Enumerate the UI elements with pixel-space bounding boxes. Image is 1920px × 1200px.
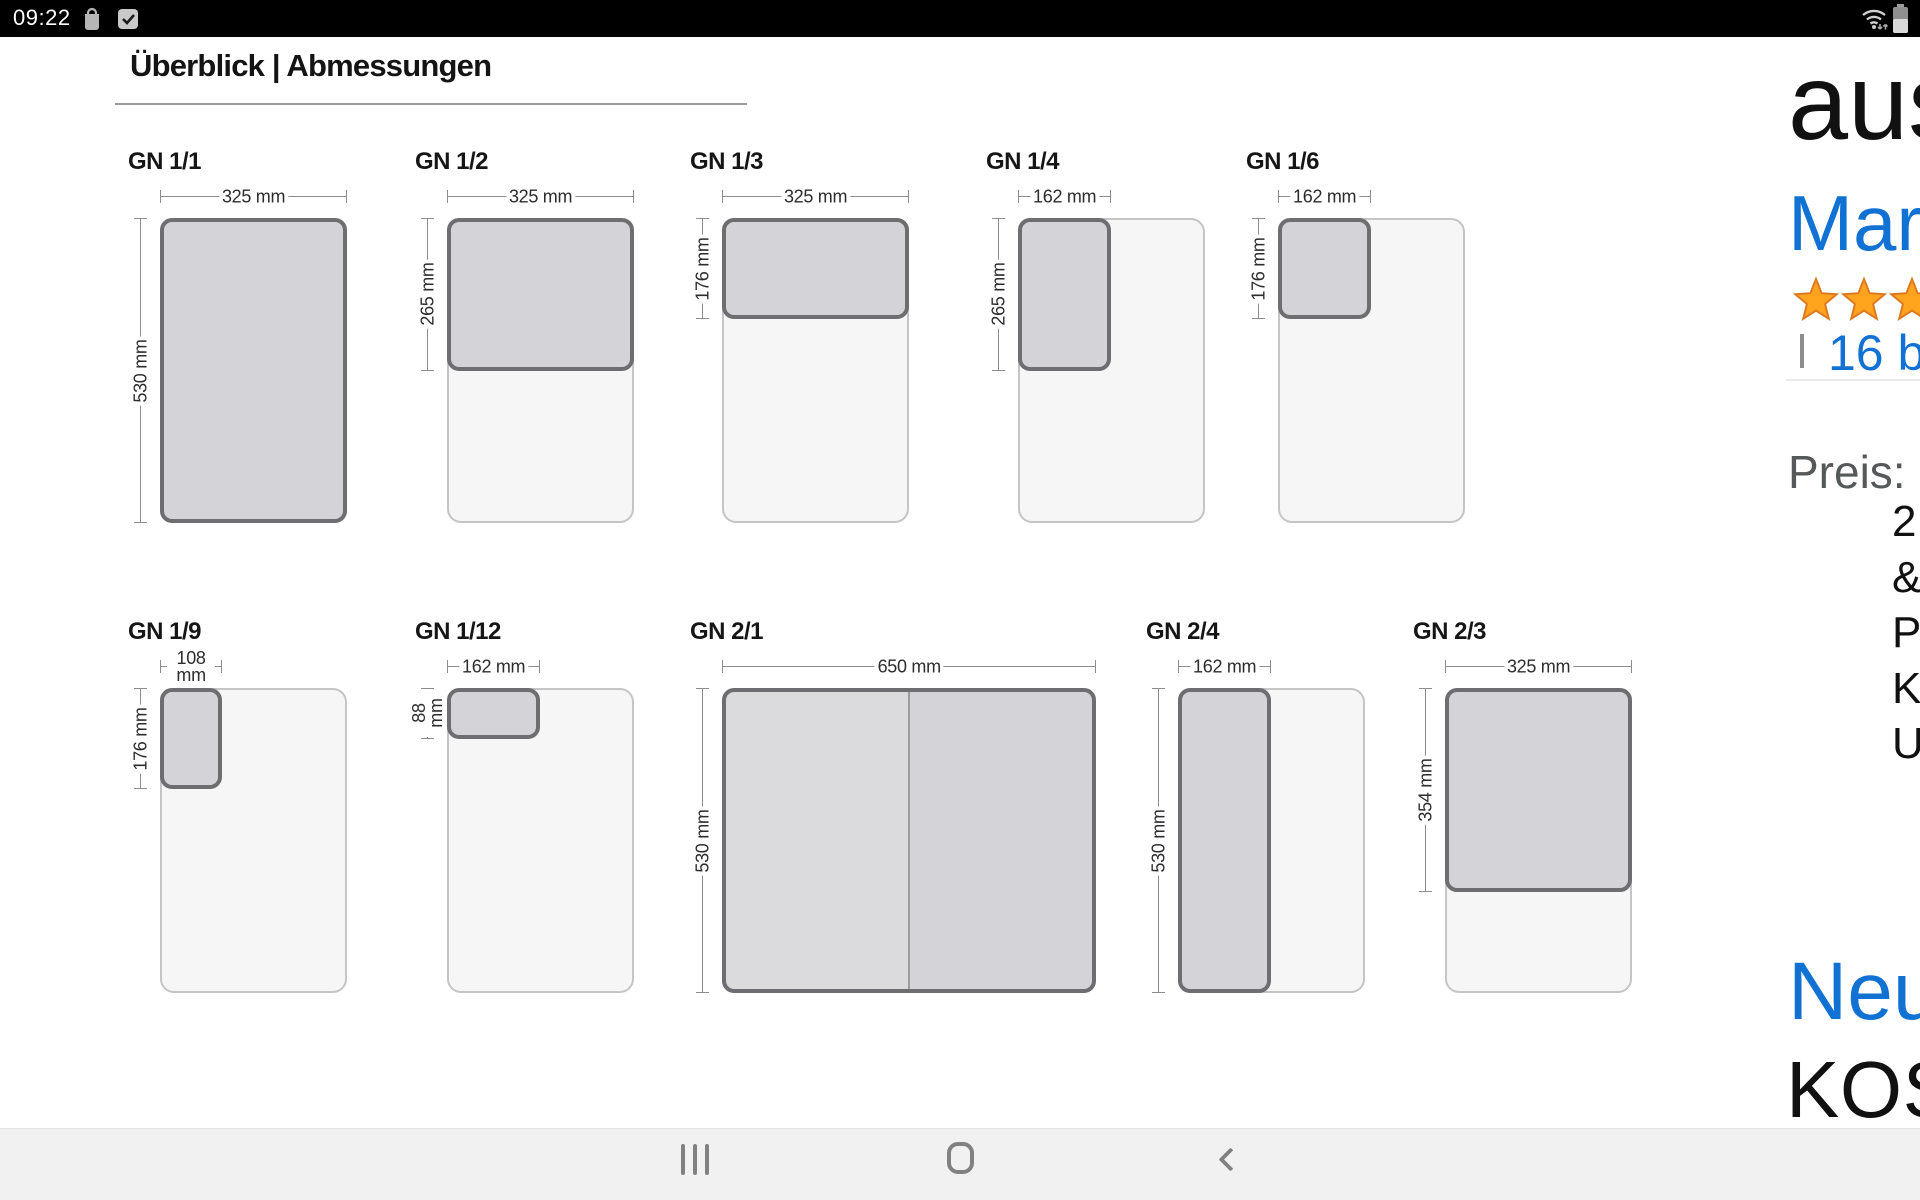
section-divider [1786, 379, 1920, 381]
dim-tick [1631, 660, 1632, 673]
dim-label: 162 mm [1030, 188, 1099, 205]
gn-highlight [722, 218, 909, 319]
dim-tick [908, 190, 909, 203]
dim-label: 176 mm [1250, 234, 1267, 303]
dim-tick [421, 738, 434, 739]
rating-separator [1800, 334, 1804, 368]
back-button[interactable] [1202, 1129, 1262, 1200]
price-details-partials: 2 & P K U [1892, 494, 1920, 772]
gn-highlight [1018, 218, 1111, 371]
dim-label: 325 mm [781, 188, 850, 205]
star-icon [1889, 277, 1920, 321]
product-title-partial: aus [1788, 48, 1920, 156]
home-icon [947, 1142, 974, 1174]
title-underline [115, 103, 747, 105]
dim-tick [221, 660, 222, 673]
wifi-icon [1861, 7, 1889, 32]
dim-label: 325 mm [1504, 658, 1573, 675]
dim-tick [1018, 190, 1019, 203]
gn-panel-label: GN 1/9 [128, 620, 201, 644]
dim-tick [160, 190, 161, 203]
dim-tick [134, 522, 147, 523]
dim-tick [447, 660, 448, 673]
dim-tick [134, 218, 147, 219]
reviews-link-partial[interactable]: 16 be [1828, 328, 1920, 378]
dim-label: 530 mm [132, 336, 149, 405]
dim-tick [1419, 688, 1432, 689]
dim-tick [1252, 218, 1265, 219]
recents-icon [681, 1144, 685, 1175]
dim-tick [722, 190, 723, 203]
dim-label: 162 mm [459, 658, 528, 675]
dim-tick [421, 370, 434, 371]
gn-highlight [1278, 218, 1371, 319]
dim-tick [421, 218, 434, 219]
gn-left-half [726, 692, 908, 989]
gn-panel-label: GN 1/12 [415, 620, 501, 644]
dim-label: 265 mm [990, 260, 1007, 329]
dim-label: 325 mm [506, 188, 575, 205]
dim-tick [696, 992, 709, 993]
dim-tick [447, 190, 448, 203]
home-button[interactable] [934, 1129, 994, 1200]
dim-tick [992, 218, 1005, 219]
gn-center-divider [908, 692, 910, 989]
dim-tick [160, 660, 161, 673]
checkbox-checked-icon [117, 7, 139, 30]
new-offers-link-partial[interactable]: Neu [1788, 951, 1920, 1033]
dim-tick [134, 788, 147, 789]
gn-highlight [447, 218, 634, 371]
navigation-bar [0, 1128, 1920, 1200]
dim-tick [1278, 190, 1279, 203]
gn-panel-label: GN 1/3 [690, 150, 763, 174]
brand-link-partial[interactable]: Mar [1788, 184, 1920, 262]
back-icon [1218, 1147, 1242, 1171]
dim-tick [1095, 660, 1096, 673]
dim-tick [1152, 992, 1165, 993]
star-icon [1841, 277, 1887, 321]
gn-highlight [160, 218, 347, 523]
dim-tick [134, 688, 147, 689]
status-bar: 09:22 [0, 0, 1920, 37]
dim-tick [1270, 660, 1271, 673]
dim-tick [1152, 688, 1165, 689]
gn-panel-label: GN 2/4 [1146, 620, 1219, 644]
dim-tick [539, 660, 540, 673]
dim-label: 88 mm [411, 689, 445, 737]
dim-tick [1445, 660, 1446, 673]
status-clock: 09:22 [13, 5, 71, 31]
dim-label: 176 mm [132, 704, 149, 773]
dim-tick [696, 688, 709, 689]
dim-label: 162 mm [1290, 188, 1359, 205]
dim-label: 108 mm [167, 650, 215, 684]
dim-label: 650 mm [875, 658, 944, 675]
dim-label: 530 mm [694, 806, 711, 875]
dim-tick [1419, 891, 1432, 892]
gn-panel-label: GN 1/2 [415, 150, 488, 174]
dim-tick [346, 190, 347, 203]
gn-panel-label: GN 2/1 [690, 620, 763, 644]
recents-button[interactable] [665, 1129, 725, 1200]
shipping-text-partial: KOS [1786, 1050, 1920, 1130]
dim-tick [633, 190, 634, 203]
gn-highlight [447, 688, 540, 739]
gn-highlight [160, 688, 222, 789]
dim-tick [992, 370, 1005, 371]
dim-label: 162 mm [1190, 658, 1259, 675]
dim-label: 176 mm [694, 234, 711, 303]
dim-tick [696, 318, 709, 319]
screen: 09:22 Überblick | Abmessungen GN 1/1325 … [0, 0, 1920, 1200]
gn-panel-label: GN 1/1 [128, 150, 201, 174]
dim-label: 325 mm [219, 188, 288, 205]
gn-panel-label: GN 2/3 [1413, 620, 1486, 644]
dim-tick [722, 660, 723, 673]
gn-panel-label: GN 1/6 [1246, 150, 1319, 174]
rating-stars[interactable] [1793, 277, 1920, 325]
dim-tick [1178, 660, 1179, 673]
gn-panel-label: GN 1/4 [986, 150, 1059, 174]
price-label: Preis: [1788, 446, 1906, 498]
dim-label: 354 mm [1417, 755, 1434, 824]
dim-tick [1370, 190, 1371, 203]
gn-highlight [1445, 688, 1632, 892]
dim-tick [1110, 190, 1111, 203]
shopping-bag-icon [82, 7, 102, 30]
price-row: Preis:1 [1788, 441, 1920, 497]
dim-tick [1252, 318, 1265, 319]
gn-highlight [1178, 688, 1271, 993]
star-icon [1793, 277, 1839, 321]
diagram-title: Überblick | Abmessungen [130, 48, 491, 84]
dim-tick [696, 218, 709, 219]
dim-label: 265 mm [419, 260, 436, 329]
dim-label: 530 mm [1150, 806, 1167, 875]
battery-icon [1892, 4, 1909, 34]
